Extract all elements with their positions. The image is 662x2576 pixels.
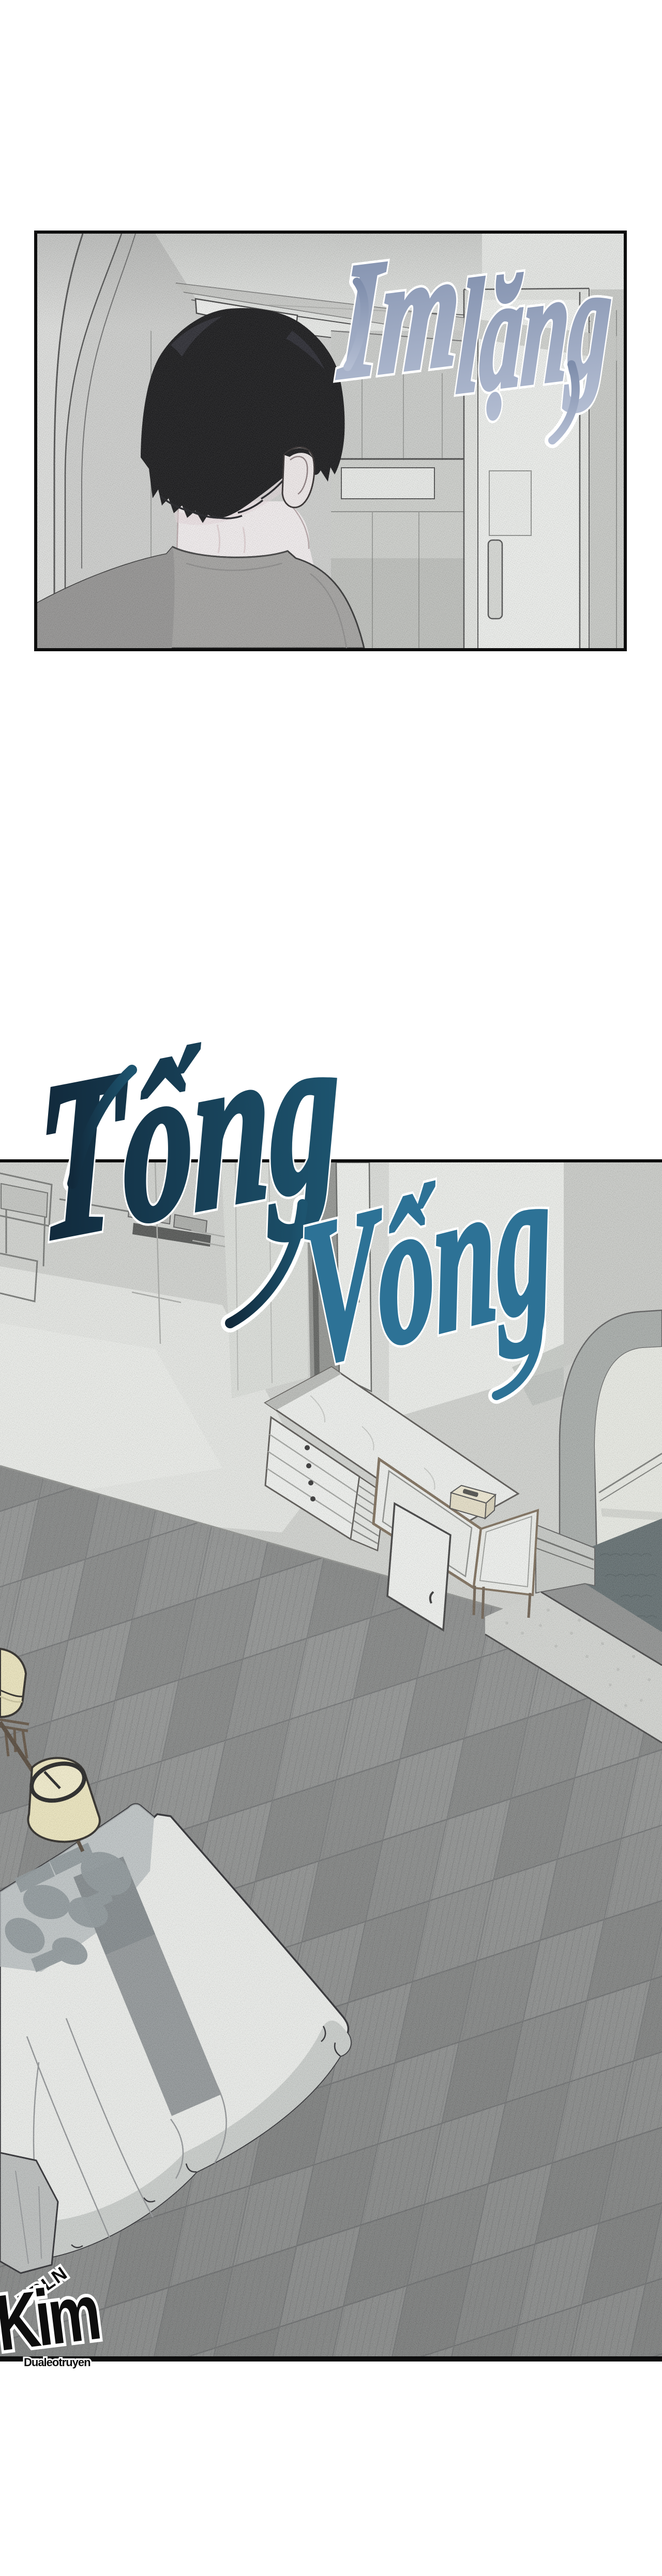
svg-text:Im: Im [335, 216, 464, 413]
svg-text:Kim: Kim [0, 2267, 102, 2368]
svg-text:lặng: lặng [454, 232, 615, 427]
svg-text:Dualeotruyen: Dualeotruyen [24, 2356, 91, 2369]
